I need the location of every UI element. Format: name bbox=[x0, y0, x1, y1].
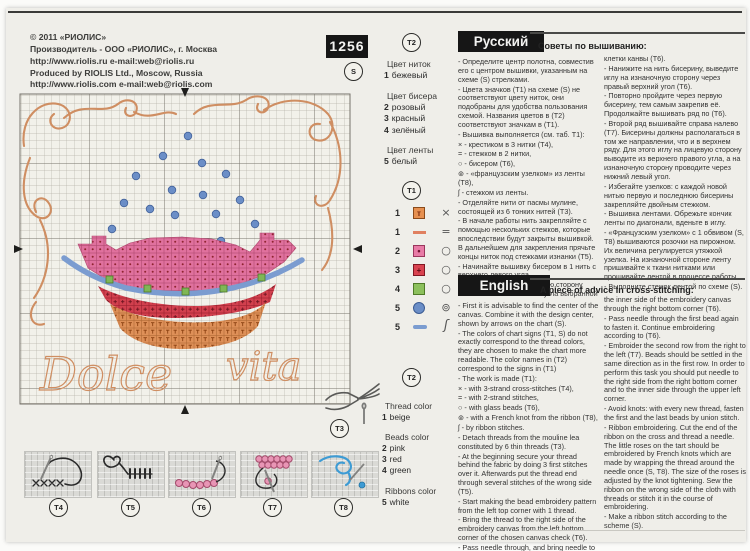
chart-symbol-chip bbox=[413, 283, 425, 295]
instruction-paragraph: - Embroider the second row from the righ… bbox=[604, 342, 746, 404]
instruction-paragraph: - «Французским узелком» с 1 обвивом (S, … bbox=[604, 229, 746, 282]
legend-line: Цвет бисера bbox=[384, 91, 464, 102]
legend-line: 4green bbox=[382, 465, 462, 476]
ribbon-knot-diagram-icon bbox=[312, 452, 376, 495]
stitch-type-glyph: × bbox=[437, 206, 455, 219]
legend-line: 5белый bbox=[384, 156, 464, 167]
instruction-paragraph: - First it is advisable to find the cent… bbox=[458, 302, 600, 329]
instruction-paragraph: - Цвета значков (T1) на схеме (S) не соо… bbox=[458, 86, 600, 130]
instruction-paragraph: - Pass needle through the first bead aga… bbox=[604, 315, 746, 342]
technique-badge-t5: T5 bbox=[121, 498, 140, 517]
symbol-row: 2 • ○ bbox=[395, 244, 465, 262]
cross-stitch-diagram-icon bbox=[25, 452, 89, 495]
legend-line: Ribbons color bbox=[382, 486, 462, 497]
ru-tips-rule bbox=[530, 32, 745, 34]
instruction-paragraph: - At the beginning secure your thread be… bbox=[458, 453, 600, 497]
instruction-paragraph: - Вышивка выполняется (см. таб. T1): bbox=[458, 131, 600, 140]
instruction-paragraph: the inner side of the embroidery canvas … bbox=[604, 296, 746, 314]
russian-section-header: Русский bbox=[458, 31, 544, 52]
chart-symbol-chip bbox=[413, 302, 425, 314]
instruction-paragraph: ʃ - стежком из ленты. bbox=[458, 189, 600, 198]
instruction-paragraph: - В начале работы нить закрепляйте с пом… bbox=[458, 217, 600, 261]
copyright-line: © 2011 «РИОЛИС» bbox=[30, 32, 330, 44]
pliers-icon bbox=[324, 380, 380, 426]
chart-badge-s: S bbox=[344, 62, 363, 81]
chart-symbol-chip: т bbox=[413, 207, 425, 219]
stitch-type-glyph: ʃ bbox=[437, 318, 455, 333]
chart-symbol-chip: + bbox=[413, 264, 425, 276]
instruction-paragraph: - Pass needle through, and bring needle … bbox=[458, 544, 600, 551]
instruction-paragraph: - Определите центр полотна, совместив ег… bbox=[458, 58, 600, 85]
instruction-paragraph: клетки канвы (T6). bbox=[604, 55, 746, 64]
symbol-row: 1 = bbox=[395, 225, 465, 243]
cross-stitch-chart: Dolce vita bbox=[14, 88, 362, 426]
page-top-rule bbox=[8, 11, 742, 13]
symbol-row: 5 ⊚ bbox=[395, 301, 465, 319]
instruction-paragraph: - Detach threads from the mouline lea co… bbox=[458, 434, 600, 452]
technique-box-t4 bbox=[24, 451, 92, 498]
script-word-dolce: Dolce bbox=[39, 347, 172, 401]
symbol-table-badge-t1: T1 bbox=[402, 181, 421, 200]
secure-thread-diagram-icon bbox=[98, 452, 162, 495]
symbol-row: 1 т × bbox=[395, 206, 465, 224]
instruction-paragraph: - Make a ribbon stitch according to the … bbox=[604, 513, 746, 531]
instruction-paragraph: - Отделяйте нити от пасмы мулине, состоя… bbox=[458, 199, 600, 217]
instruction-paragraph: ○ - бисером (T6), bbox=[458, 160, 600, 169]
legend-line: Цвет ленты bbox=[384, 145, 464, 156]
legend-line: Цвет ниток bbox=[384, 59, 464, 70]
instruction-paragraph: ⊚ - «французским узелком» из ленты (T8), bbox=[458, 170, 600, 188]
instruction-paragraph: - Второй ряд вышивайте справа налево (T7… bbox=[604, 120, 746, 182]
publisher-info: © 2011 «РИОЛИС» Производитель - ООО «РИО… bbox=[30, 32, 330, 91]
en-instructions-col1: - First it is advisable to find the cent… bbox=[458, 302, 600, 551]
symbol-row: 5 ʃ bbox=[395, 320, 465, 338]
legend-line: 4зелёный bbox=[384, 125, 464, 136]
color-legend-en: Thread color 1beige Beads color 2pink 3r… bbox=[382, 392, 462, 508]
legend-line: 5white bbox=[382, 497, 462, 508]
legend-line: 1beige bbox=[382, 412, 462, 423]
bead-second-row-diagram-icon bbox=[241, 452, 305, 495]
chart-symbol-chip bbox=[413, 231, 426, 234]
producer-line-ru: Производитель - ООО «РИОЛИС», г. Москва bbox=[30, 44, 330, 56]
chart-symbol-chip bbox=[413, 325, 427, 329]
technique-badge-t4: T4 bbox=[49, 498, 68, 517]
instruction-paragraph: = - with 2-strand stitches, bbox=[458, 394, 600, 403]
legend-line: Thread color bbox=[382, 401, 462, 412]
instruction-paragraph: - Повторно пройдите через первую бисерин… bbox=[604, 92, 746, 119]
instruction-paragraph: - Избегайте узелков: с каждой новой нить… bbox=[604, 183, 746, 210]
technique-box-t5 bbox=[97, 451, 165, 498]
pattern-number-badge: 1256 bbox=[326, 35, 368, 58]
ru-instructions-col2: клетки канвы (T6).- Нанижите на нить бис… bbox=[604, 55, 746, 293]
instruction-paragraph: × - with 3-strand cross-stitches (T4), bbox=[458, 385, 600, 394]
instruction-paragraph: × - крестиком в 3 нитки (T4), bbox=[458, 141, 600, 150]
technique-box-t7 bbox=[240, 451, 308, 498]
legend-line: 3red bbox=[382, 454, 462, 465]
bead-row-diagram-icon bbox=[169, 452, 233, 495]
instruction-paragraph: - Ribbon embroidering. Cut the end of th… bbox=[604, 424, 746, 512]
en-instructions-col2: the inner side of the embroidery canvas … bbox=[604, 296, 746, 532]
technique-badge-t6: T6 bbox=[192, 498, 211, 517]
scan-edge-shadow bbox=[530, 530, 745, 531]
instruction-paragraph: - Avoid knots: with every new thread, fa… bbox=[604, 405, 746, 423]
en-tips-rule bbox=[530, 278, 745, 280]
stitch-type-glyph: ⊚ bbox=[437, 301, 455, 314]
ru-instructions-col1: - Определите центр полотна, совместив ег… bbox=[458, 58, 600, 300]
stitch-type-glyph: ○ bbox=[437, 244, 455, 257]
ru-tips-title: Советы по вышиванию: bbox=[538, 41, 647, 51]
instruction-paragraph: ⊚ - with a French knot from the ribbon (… bbox=[458, 414, 600, 423]
script-word-vita: vita bbox=[226, 344, 301, 390]
stitch-type-glyph: ○ bbox=[437, 282, 455, 295]
stitch-type-glyph: = bbox=[437, 225, 455, 238]
instruction-paragraph: - The work is made (T1): bbox=[458, 375, 600, 384]
instruction-paragraph: - Вышивка лентами. Обрежьте кончик ленты… bbox=[604, 210, 746, 228]
chart-symbol-chip: • bbox=[413, 245, 425, 257]
en-tips-title: A piece of advice in cross-stitching: bbox=[540, 285, 694, 295]
chart-svg: Dolce vita bbox=[14, 88, 362, 426]
symbol-row: 3 + ○ bbox=[395, 263, 465, 281]
legend-line: 1бежевый bbox=[384, 70, 464, 81]
stitch-type-glyph: ○ bbox=[437, 263, 455, 276]
symbol-table: 1 т × 1 = 2 • ○ 3 + ○ 4 bbox=[395, 206, 467, 346]
legend-en-badge-t2: T2 bbox=[402, 368, 421, 387]
technique-badge-t8: T8 bbox=[334, 498, 353, 517]
pliers-badge-t3: T3 bbox=[330, 419, 349, 438]
instruction-paragraph: - The colors of chart signs (T1, S) do n… bbox=[458, 330, 600, 374]
website-line-ru: http://www.riolis.ru e-mail:web@riolis.r… bbox=[30, 56, 330, 68]
technique-box-t6 bbox=[168, 451, 236, 498]
instruction-paragraph: - Start making the bead embroidery patte… bbox=[458, 498, 600, 516]
technique-badge-t7: T7 bbox=[263, 498, 282, 517]
legend-line: Beads color bbox=[382, 432, 462, 443]
instruction-paragraph: - Нанижите на нить бисерину, выведите иг… bbox=[604, 65, 746, 92]
producer-line-en: Produced by RIOLIS Ltd., Moscow, Russia bbox=[30, 68, 330, 80]
technique-box-t8 bbox=[311, 451, 379, 498]
instruction-paragraph: ○ - with glass beads (T6), bbox=[458, 404, 600, 413]
scanned-instruction-sheet: © 2011 «РИОЛИС» Производитель - ООО «РИО… bbox=[0, 0, 750, 551]
legend-line: 3красный bbox=[384, 113, 464, 124]
symbol-row: 4 ○ bbox=[395, 282, 465, 300]
instruction-paragraph: = - стежком в 2 нитки, bbox=[458, 150, 600, 159]
legend-line: 2pink bbox=[382, 443, 462, 454]
legend-line: 2розовый bbox=[384, 102, 464, 113]
instruction-paragraph: ʃ - by ribbon stitches. bbox=[458, 424, 600, 433]
color-legend-ru: Цвет ниток 1бежевый Цвет бисера 2розовый… bbox=[384, 50, 464, 168]
thread-separation-illustration bbox=[324, 380, 380, 426]
